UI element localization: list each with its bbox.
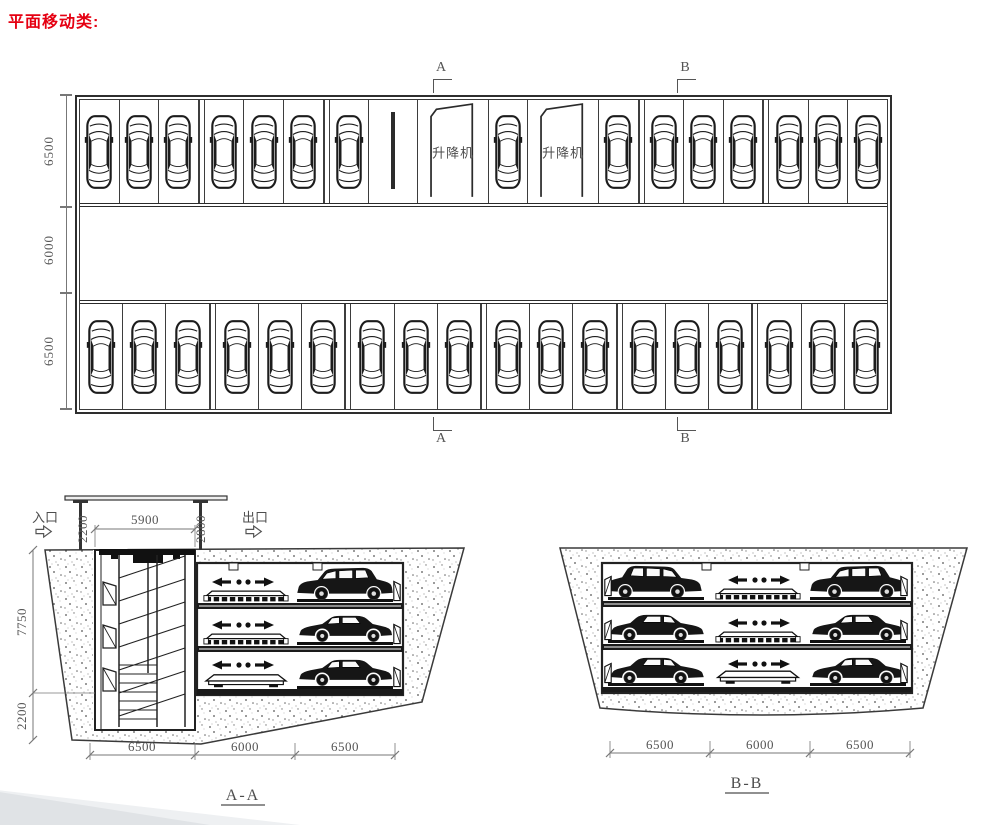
car-top-icon [288, 108, 318, 196]
wheel-stop-icon [394, 624, 400, 643]
car-top-icon [493, 313, 523, 401]
dimension-label: 6500 [41, 319, 55, 383]
dimension-label: 5900 [131, 512, 159, 527]
car-top-icon [401, 313, 431, 401]
pallet-shuttle-icon [204, 634, 288, 644]
parking-stall [623, 304, 666, 409]
dimension-tick [60, 292, 72, 294]
parking-stall [845, 304, 887, 409]
parking-stall [244, 100, 284, 203]
dimension-label: 7750 [15, 608, 29, 636]
car-top-icon [357, 313, 387, 401]
car-top-icon [129, 313, 159, 401]
parking-stall [848, 100, 887, 203]
wheel-stop-icon [605, 663, 611, 682]
parking-stall [330, 100, 370, 203]
car-top-icon [688, 108, 718, 196]
parking-stall [259, 304, 302, 409]
dimension-label: 6500 [646, 737, 674, 752]
car-top-icon [173, 313, 203, 401]
car-top-icon [851, 313, 881, 401]
car-top-icon [334, 108, 364, 196]
dimension-tick [60, 408, 72, 410]
car-top-icon [764, 313, 794, 401]
car-top-icon [222, 313, 252, 401]
parking-stall [530, 304, 573, 409]
transfer-cart-icon [680, 204, 714, 302]
car-top-icon [265, 313, 295, 401]
wheel-stop-icon [394, 581, 400, 600]
parking-stall [216, 304, 259, 409]
parking-stall [123, 304, 166, 409]
section-aa-label: A-A [226, 787, 260, 804]
dimension-label: 6500 [128, 739, 156, 754]
parking-stall [684, 100, 724, 203]
dimension-label: 6000 [231, 739, 259, 754]
dimension-label: 2200 [75, 515, 90, 543]
car-top-icon [84, 108, 114, 196]
section-bb-label: B-B [731, 775, 764, 792]
shaft-door-flags [103, 582, 116, 691]
plan-view: 升降机 升降机 [75, 95, 892, 414]
parking-stall [573, 304, 616, 409]
parking-stall [120, 100, 160, 203]
car-top-icon [444, 313, 474, 401]
section-marker-a-bottom-glyph [433, 417, 452, 431]
plan-inner-wall: 升降机 升降机 [79, 99, 888, 410]
car-top-icon [209, 108, 239, 196]
pallet-shuttle-icon [204, 591, 288, 601]
lift-cell: 升降机 [418, 100, 488, 203]
wheel-stop-icon [605, 620, 611, 639]
car-top-icon [774, 108, 804, 196]
plan-dimension-line [66, 95, 67, 410]
section-marker-b-top-glyph [677, 79, 696, 93]
exit-arrow-icon [246, 526, 261, 537]
section-marker-b-bottom-label: B [675, 431, 695, 447]
dimension-label: 6500 [41, 119, 55, 183]
parking-stall [80, 100, 120, 203]
car-top-icon [493, 108, 523, 196]
parking-stall [645, 100, 685, 203]
parking-stall [809, 100, 849, 203]
section-marker-b-top-label: B [675, 60, 695, 76]
car-top-icon [808, 313, 838, 401]
parking-stall [709, 304, 752, 409]
car-top-icon [672, 313, 702, 401]
section-aa-drawing: 入口 出口 5900 2200 2800 7750 2200 [15, 483, 470, 818]
car-top-icon [249, 108, 279, 196]
section-marker-b-bottom-glyph [677, 417, 696, 431]
car-top-icon [728, 108, 758, 196]
wheel-stop-icon [901, 663, 907, 682]
wheel-stop-icon [394, 667, 400, 686]
parking-stall [351, 304, 394, 409]
car-top-icon [649, 108, 679, 196]
dimension-label: 2200 [15, 702, 29, 730]
wheel-stop-icon [901, 576, 907, 595]
parking-stall [159, 100, 199, 203]
parking-stall [769, 100, 809, 203]
car-top-icon [813, 108, 843, 196]
stall-divider-bar [391, 112, 395, 188]
section-marker-a-bottom-label: A [431, 431, 451, 447]
dimension-label: 6500 [846, 737, 874, 752]
parking-stall [599, 100, 639, 203]
lift-label: 升降机 [418, 142, 487, 161]
car-top-icon [580, 313, 610, 401]
dimension-tick [60, 206, 72, 208]
pallet-shuttle-icon [716, 589, 800, 599]
parking-stall [166, 304, 209, 409]
parking-stall [205, 100, 245, 203]
dimension-label: 6000 [41, 218, 55, 282]
parking-stall [80, 304, 123, 409]
parking-stall [395, 304, 438, 409]
parking-stall [487, 304, 530, 409]
parking-stall [758, 304, 801, 409]
dimension-label: 6500 [331, 739, 359, 754]
wheel-stop-icon [605, 576, 611, 595]
plan-bottom-parking-row [80, 300, 887, 409]
top-dimensions [91, 525, 199, 547]
entrance-label: 入口 [32, 510, 58, 525]
car-top-icon [124, 108, 154, 196]
car-top-icon [603, 108, 633, 196]
parking-stall [666, 304, 709, 409]
pallet-shuttle-icon [716, 632, 800, 642]
parking-stall [802, 304, 845, 409]
car-top-icon [536, 313, 566, 401]
car-top-icon [629, 313, 659, 401]
section-marker-a-top-label: A [431, 60, 451, 76]
wheel-stop-icon [901, 620, 907, 639]
dimension-label: 2800 [193, 515, 208, 543]
parking-stall [724, 100, 764, 203]
car-top-icon [853, 108, 883, 196]
parking-stall [438, 304, 481, 409]
empty-stall [369, 100, 418, 203]
car-top-icon [715, 313, 745, 401]
aisle [80, 207, 887, 300]
dimension-label: 6000 [746, 737, 774, 752]
entrance-arrow-icon [36, 526, 51, 537]
section-bb-drawing: 6500 6000 6500 B-B [552, 538, 972, 813]
lift-cell: 升降机 [528, 100, 598, 203]
exit-label: 出口 [242, 510, 268, 525]
parking-stall [302, 304, 345, 409]
page-title: 平面移动类: [8, 8, 99, 32]
page: 平面移动类: A B 升降机 [0, 0, 981, 825]
lift-label: 升降机 [528, 142, 597, 161]
car-top-icon [86, 313, 116, 401]
parking-stall [284, 100, 324, 203]
section-marker-a-top-glyph [433, 79, 452, 93]
plan-top-parking-row: 升降机 升降机 [80, 100, 887, 207]
dimension-tick [60, 94, 72, 96]
car-top-icon [308, 313, 338, 401]
parking-stall [489, 100, 529, 203]
car-top-icon [163, 108, 193, 196]
